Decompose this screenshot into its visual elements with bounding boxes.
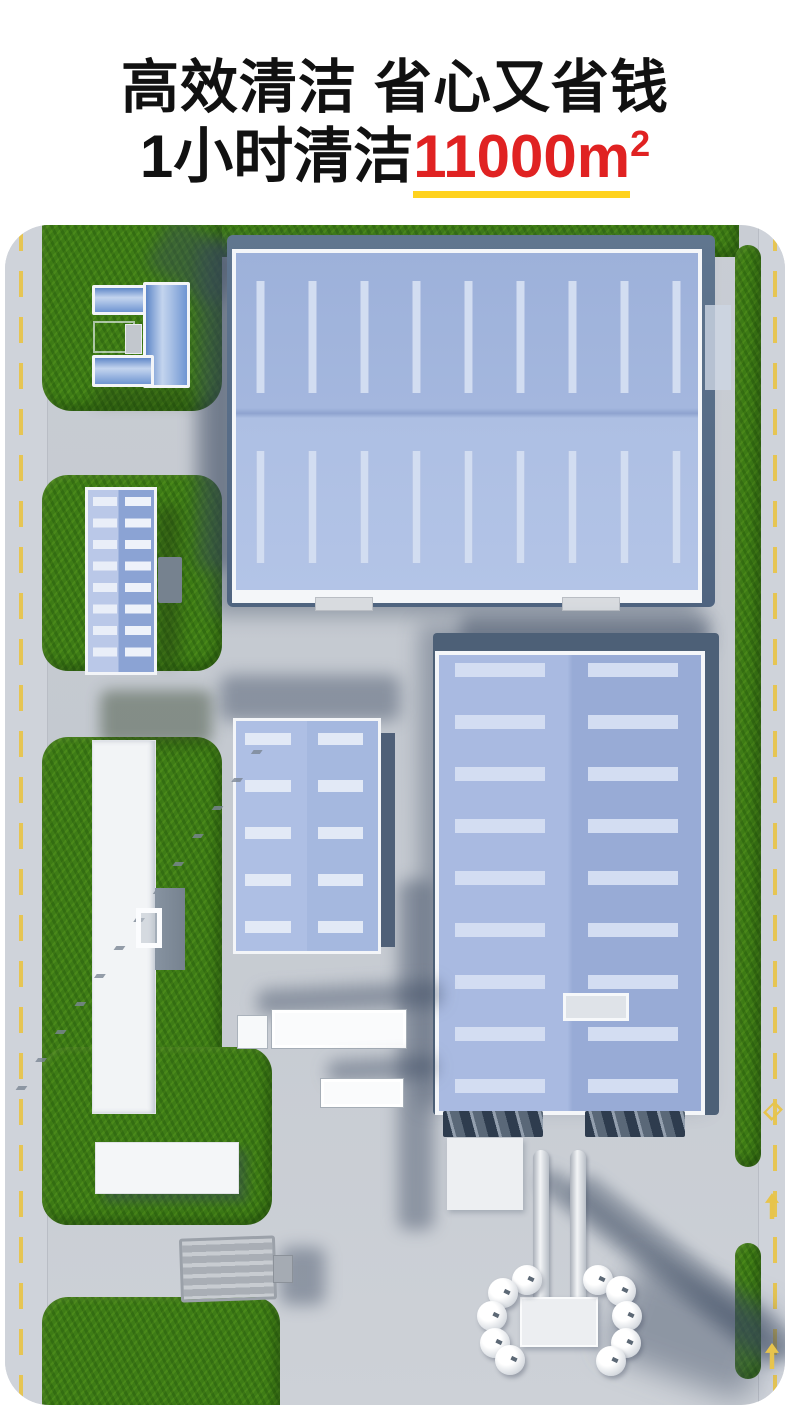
big-warehouse-wall-panel: [705, 305, 731, 390]
grass-block-bottomleft: [42, 1297, 280, 1405]
white-flat-building: [95, 1142, 239, 1194]
tank-hatch-icon: [503, 1289, 510, 1295]
shadow-u-building: [93, 388, 193, 404]
shadow-medium-building: [220, 675, 400, 721]
chimney-right: [570, 1150, 586, 1315]
striped-workshop-skylights-right: [125, 497, 151, 665]
tank-hatch-icon: [626, 1339, 633, 1345]
tank-hatch-icon: [621, 1287, 628, 1293]
truck1-cab: [237, 1015, 268, 1049]
tall-warehouse-skylights-left: [455, 663, 545, 1093]
big-warehouse-skylights-row1: [256, 281, 682, 393]
big-warehouse-dock-right: [562, 597, 620, 611]
silo-tank: [612, 1301, 642, 1331]
medium-workshop-skylights-right: [318, 733, 363, 933]
aerial-site-render: [5, 225, 785, 1405]
silo-tank: [495, 1345, 525, 1375]
headline-highlight-area: 11000m: [413, 123, 630, 198]
striped-workshop-skylights-left: [93, 497, 117, 665]
tall-warehouse-roof-structure: [563, 993, 629, 1021]
road-right-dash-line: [773, 225, 777, 1405]
truck2-trailer: [320, 1078, 404, 1108]
long-white-building-roof-frame: [136, 908, 162, 948]
tall-warehouse-loading-pad: [447, 1138, 523, 1210]
tank-hatch-icon: [598, 1276, 605, 1282]
headline-line2: 1小时清洁11000m2: [0, 108, 790, 195]
road-left-dash-line: [19, 225, 23, 1405]
striped-workshop-annex: [158, 557, 182, 603]
tall-warehouse-dock-vents-right: [585, 1111, 685, 1137]
tank-hatch-icon: [492, 1312, 499, 1318]
u-building-wing-bottom: [92, 355, 154, 387]
medium-workshop-side-wall: [381, 733, 395, 947]
tall-warehouse-skylights-right: [588, 663, 678, 1093]
tank-hatch-icon: [495, 1339, 502, 1345]
big-warehouse-dock-left: [315, 597, 373, 611]
tall-warehouse-dock-vents-left: [443, 1111, 543, 1137]
headline-superscript: 2: [630, 123, 650, 164]
silo-base-structure: [520, 1297, 598, 1347]
road-right: [758, 225, 785, 1405]
shadow-white-building: [100, 690, 212, 745]
header: 高效清洁 省心又省钱 1小时清洁11000m2: [0, 0, 790, 225]
tank-hatch-icon: [611, 1357, 618, 1363]
grass-strip-right-upper: [735, 245, 761, 1167]
big-warehouse-skylights-row2: [256, 451, 682, 563]
silo-tank: [477, 1301, 507, 1331]
gray-flatbed-machine-cab: [273, 1255, 293, 1283]
grass-block-left-extension: [42, 1047, 272, 1225]
big-warehouse-eave: [232, 590, 702, 603]
gray-flatbed-machine: [179, 1235, 277, 1302]
headline-line2-prefix: 1小时清洁: [140, 123, 413, 190]
tank-hatch-icon: [510, 1356, 517, 1362]
silo-tank: [596, 1346, 626, 1376]
tank-hatch-icon: [627, 1312, 634, 1318]
truck1-trailer: [271, 1009, 407, 1049]
tank-hatch-icon: [527, 1276, 534, 1282]
u-building-court-structure: [125, 324, 142, 354]
